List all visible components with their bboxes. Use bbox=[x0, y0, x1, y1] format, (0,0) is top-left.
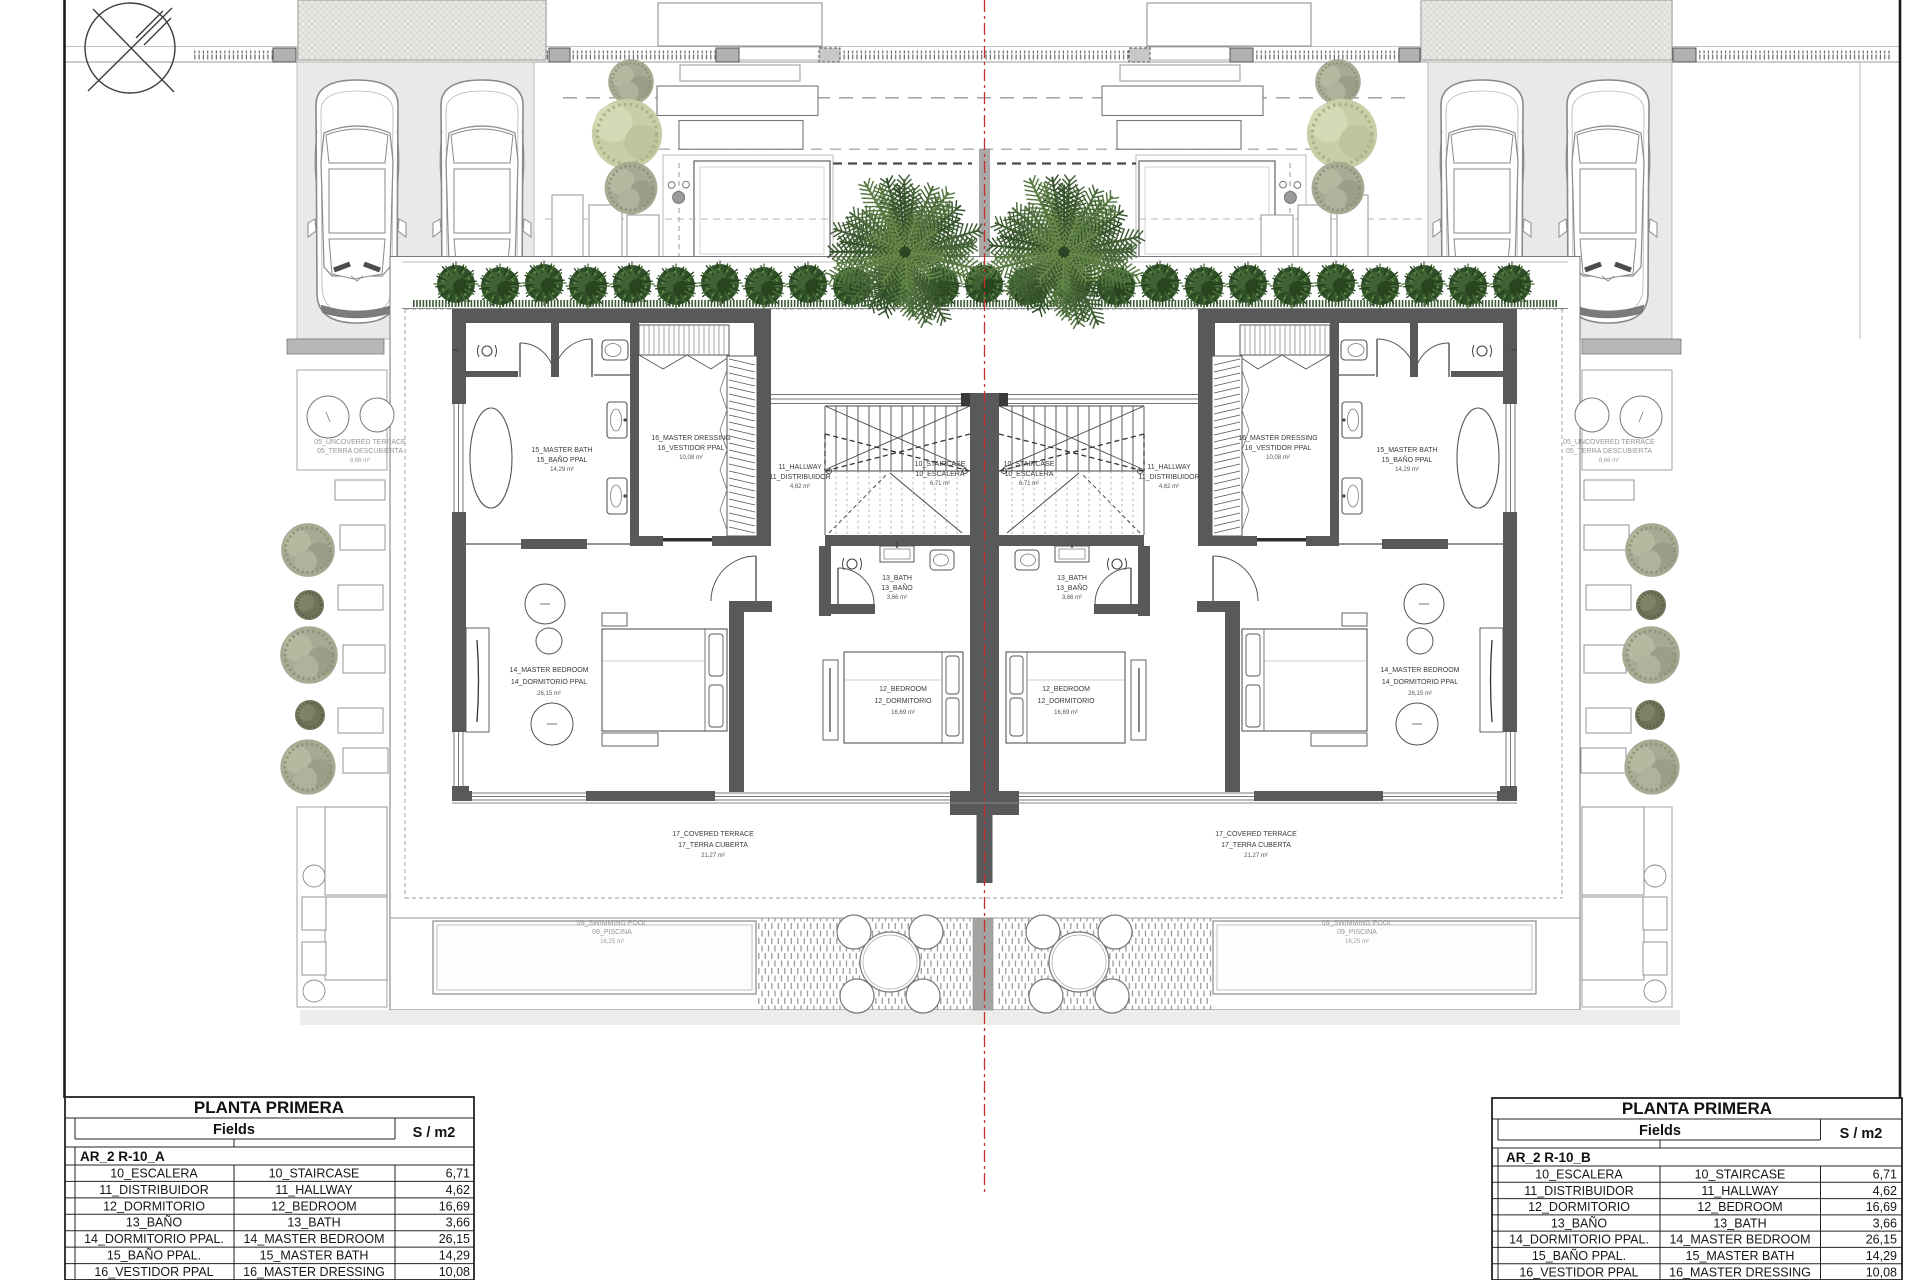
svg-text:16,25 m²: 16,25 m² bbox=[600, 939, 624, 945]
svg-text:3,66 m²: 3,66 m² bbox=[887, 595, 907, 601]
svg-text:12_BEDROOM: 12_BEDROOM bbox=[879, 686, 927, 693]
svg-text:12_DORMITORIO: 12_DORMITORIO bbox=[1528, 1200, 1630, 1214]
svg-text:8,66 m²: 8,66 m² bbox=[350, 458, 370, 464]
svg-text:16_VESTIDOR PPAL: 16_VESTIDOR PPAL bbox=[94, 1265, 213, 1279]
svg-text:S / m2: S / m2 bbox=[413, 1125, 456, 1141]
svg-text:11_DISTRIBUIDOR: 11_DISTRIBUIDOR bbox=[1138, 474, 1199, 481]
svg-text:4,62 m²: 4,62 m² bbox=[1159, 484, 1179, 490]
svg-text:09_SWIMMING POOL: 09_SWIMMING POOL bbox=[1322, 920, 1393, 927]
svg-text:6,71: 6,71 bbox=[446, 1167, 470, 1181]
svg-text:13_BAÑO: 13_BAÑO bbox=[1056, 583, 1088, 592]
svg-text:6,71 m²: 6,71 m² bbox=[1019, 481, 1039, 487]
svg-text:14_MASTER BEDROOM: 14_MASTER BEDROOM bbox=[1669, 1233, 1810, 1247]
svg-text:15_BAÑO PPAL: 15_BAÑO PPAL bbox=[1382, 455, 1433, 464]
svg-text:13_BAÑO: 13_BAÑO bbox=[881, 583, 913, 592]
svg-text:13_BAÑO: 13_BAÑO bbox=[1551, 1216, 1608, 1230]
svg-text:14_DORMITORIO PPAL.: 14_DORMITORIO PPAL. bbox=[1509, 1233, 1649, 1247]
svg-text:S / m2: S / m2 bbox=[1840, 1126, 1883, 1142]
svg-text:AR_2 R-10_B: AR_2 R-10_B bbox=[1506, 1150, 1591, 1165]
svg-text:10_STAIRCASE: 10_STAIRCASE bbox=[915, 461, 966, 468]
svg-text:16,69: 16,69 bbox=[439, 1199, 470, 1213]
svg-text:16,69 m²: 16,69 m² bbox=[891, 710, 915, 716]
svg-text:15_BAÑO PPAL: 15_BAÑO PPAL bbox=[537, 455, 588, 464]
svg-text:14,29: 14,29 bbox=[439, 1249, 470, 1263]
svg-text:16_VESTIDOR PPAL: 16_VESTIDOR PPAL bbox=[1519, 1265, 1638, 1279]
svg-text:13_BATH: 13_BATH bbox=[1713, 1216, 1766, 1230]
svg-text:21,27 m²: 21,27 m² bbox=[1244, 853, 1268, 859]
svg-text:12_DORMITORIO: 12_DORMITORIO bbox=[874, 698, 932, 705]
svg-text:15_MASTER BATH: 15_MASTER BATH bbox=[532, 447, 593, 454]
svg-text:PLANTA PRIMERA: PLANTA PRIMERA bbox=[194, 1098, 344, 1117]
svg-text:10,08 m²: 10,08 m² bbox=[679, 455, 703, 461]
svg-text:11_HALLWAY: 11_HALLWAY bbox=[1147, 464, 1191, 471]
svg-text:17_TERRA CUBERTA: 17_TERRA CUBERTA bbox=[1221, 842, 1291, 849]
svg-text:05_UNCOVERED TERRACE: 05_UNCOVERED TERRACE bbox=[314, 439, 406, 446]
svg-text:10,08: 10,08 bbox=[439, 1265, 470, 1279]
svg-text:8,66 m²: 8,66 m² bbox=[1599, 458, 1619, 464]
svg-text:17_COVERED TERRACE: 17_COVERED TERRACE bbox=[672, 831, 754, 838]
svg-text:16_MASTER DRESSING: 16_MASTER DRESSING bbox=[1669, 1265, 1811, 1279]
svg-text:10,08: 10,08 bbox=[1866, 1265, 1897, 1279]
svg-text:14,29: 14,29 bbox=[1866, 1249, 1897, 1263]
svg-text:16,69: 16,69 bbox=[1866, 1200, 1897, 1214]
svg-text:11_DISTRIBUIDOR: 11_DISTRIBUIDOR bbox=[1524, 1184, 1634, 1198]
svg-text:6,71: 6,71 bbox=[1873, 1168, 1897, 1182]
svg-text:10_ESCALERA: 10_ESCALERA bbox=[1535, 1168, 1623, 1182]
svg-text:21,27 m²: 21,27 m² bbox=[701, 853, 725, 859]
svg-text:4,62: 4,62 bbox=[446, 1183, 470, 1197]
svg-text:26,15: 26,15 bbox=[439, 1232, 470, 1246]
svg-text:09_SWIMMING POOL: 09_SWIMMING POOL bbox=[577, 920, 648, 927]
svg-text:05_TERRA DESCUBIERTA: 05_TERRA DESCUBIERTA bbox=[317, 448, 403, 455]
svg-text:PLANTA PRIMERA: PLANTA PRIMERA bbox=[1622, 1099, 1772, 1118]
svg-text:10_ESCALERA: 10_ESCALERA bbox=[1004, 471, 1053, 478]
svg-text:3,66 m²: 3,66 m² bbox=[1062, 595, 1082, 601]
svg-text:10_ESCALERA: 10_ESCALERA bbox=[110, 1167, 198, 1181]
svg-text:12_BEDROOM: 12_BEDROOM bbox=[1697, 1200, 1782, 1214]
svg-text:Fields: Fields bbox=[1639, 1123, 1681, 1139]
svg-text:4,62: 4,62 bbox=[1873, 1184, 1897, 1198]
svg-text:Fields: Fields bbox=[213, 1122, 255, 1138]
svg-text:14,29 m²: 14,29 m² bbox=[550, 467, 574, 473]
svg-text:15_BAÑO PPAL.: 15_BAÑO PPAL. bbox=[107, 1249, 201, 1263]
svg-text:17_TERRA CUBERTA: 17_TERRA CUBERTA bbox=[678, 842, 748, 849]
svg-text:10_STAIRCASE: 10_STAIRCASE bbox=[269, 1167, 360, 1181]
svg-text:05_UNCOVERED TERRACE: 05_UNCOVERED TERRACE bbox=[1563, 439, 1655, 446]
svg-text:09_PISCINA: 09_PISCINA bbox=[1337, 929, 1377, 936]
svg-text:15_MASTER BATH: 15_MASTER BATH bbox=[260, 1249, 369, 1263]
svg-text:11_HALLWAY: 11_HALLWAY bbox=[778, 464, 822, 471]
svg-text:14,29 m²: 14,29 m² bbox=[1395, 467, 1419, 473]
svg-text:13_BATH: 13_BATH bbox=[287, 1216, 340, 1230]
svg-text:3,66: 3,66 bbox=[1873, 1216, 1897, 1230]
svg-text:14_MASTER BEDROOM: 14_MASTER BEDROOM bbox=[1381, 667, 1460, 674]
svg-text:13_BATH: 13_BATH bbox=[1057, 575, 1087, 582]
svg-text:16,25 m²: 16,25 m² bbox=[1345, 939, 1369, 945]
svg-text:3,66: 3,66 bbox=[446, 1216, 470, 1230]
svg-text:10_STAIRCASE: 10_STAIRCASE bbox=[1004, 461, 1055, 468]
svg-text:12_DORMITORIO: 12_DORMITORIO bbox=[103, 1199, 205, 1213]
svg-text:12_DORMITORIO: 12_DORMITORIO bbox=[1037, 698, 1095, 705]
svg-text:11_HALLWAY: 11_HALLWAY bbox=[275, 1183, 353, 1197]
svg-text:AR_2 R-10_A: AR_2 R-10_A bbox=[80, 1149, 165, 1164]
svg-text:16_MASTER DRESSING: 16_MASTER DRESSING bbox=[1238, 435, 1317, 442]
svg-text:09_PISCINA: 09_PISCINA bbox=[592, 929, 632, 936]
svg-text:16_VESTIDOR PPAL: 16_VESTIDOR PPAL bbox=[658, 445, 725, 452]
svg-text:15_MASTER BATH: 15_MASTER BATH bbox=[1377, 447, 1438, 454]
svg-text:13_BATH: 13_BATH bbox=[882, 575, 912, 582]
svg-text:6,71 m²: 6,71 m² bbox=[930, 481, 950, 487]
svg-text:11_DISTRIBUIDOR: 11_DISTRIBUIDOR bbox=[99, 1183, 209, 1197]
svg-text:16_MASTER DRESSING: 16_MASTER DRESSING bbox=[651, 435, 730, 442]
svg-text:11_DISTRIBUIDOR: 11_DISTRIBUIDOR bbox=[769, 474, 830, 481]
svg-text:15_MASTER BATH: 15_MASTER BATH bbox=[1686, 1249, 1795, 1263]
svg-text:05_TERRA DESCUBIERTA: 05_TERRA DESCUBIERTA bbox=[1566, 448, 1652, 455]
svg-text:16,69 m²: 16,69 m² bbox=[1054, 710, 1078, 716]
svg-text:26,15: 26,15 bbox=[1866, 1233, 1897, 1247]
svg-text:10_STAIRCASE: 10_STAIRCASE bbox=[1695, 1168, 1786, 1182]
svg-text:13_BAÑO: 13_BAÑO bbox=[126, 1216, 183, 1230]
svg-text:15_BAÑO PPAL.: 15_BAÑO PPAL. bbox=[1532, 1249, 1626, 1263]
svg-text:10_ESCALERA: 10_ESCALERA bbox=[915, 471, 964, 478]
svg-text:14_MASTER BEDROOM: 14_MASTER BEDROOM bbox=[243, 1232, 384, 1246]
svg-text:12_BEDROOM: 12_BEDROOM bbox=[271, 1199, 356, 1213]
svg-text:16_MASTER DRESSING: 16_MASTER DRESSING bbox=[243, 1265, 385, 1279]
svg-text:14_MASTER BEDROOM: 14_MASTER BEDROOM bbox=[510, 667, 589, 674]
svg-text:14_DORMITORIO PPAL: 14_DORMITORIO PPAL bbox=[1382, 679, 1458, 686]
svg-text:12_BEDROOM: 12_BEDROOM bbox=[1042, 686, 1090, 693]
svg-text:4,62 m²: 4,62 m² bbox=[790, 484, 810, 490]
svg-text:14_DORMITORIO PPAL.: 14_DORMITORIO PPAL. bbox=[84, 1232, 224, 1246]
svg-text:11_HALLWAY: 11_HALLWAY bbox=[1701, 1184, 1779, 1198]
svg-text:26,15 m²: 26,15 m² bbox=[537, 691, 561, 697]
svg-text:17_COVERED TERRACE: 17_COVERED TERRACE bbox=[1215, 831, 1297, 838]
svg-text:16_VESTIDOR PPAL: 16_VESTIDOR PPAL bbox=[1245, 445, 1312, 452]
svg-text:10,08 m²: 10,08 m² bbox=[1266, 455, 1290, 461]
svg-text:14_DORMITORIO PPAL: 14_DORMITORIO PPAL bbox=[511, 679, 587, 686]
svg-text:26,15 m²: 26,15 m² bbox=[1408, 691, 1432, 697]
